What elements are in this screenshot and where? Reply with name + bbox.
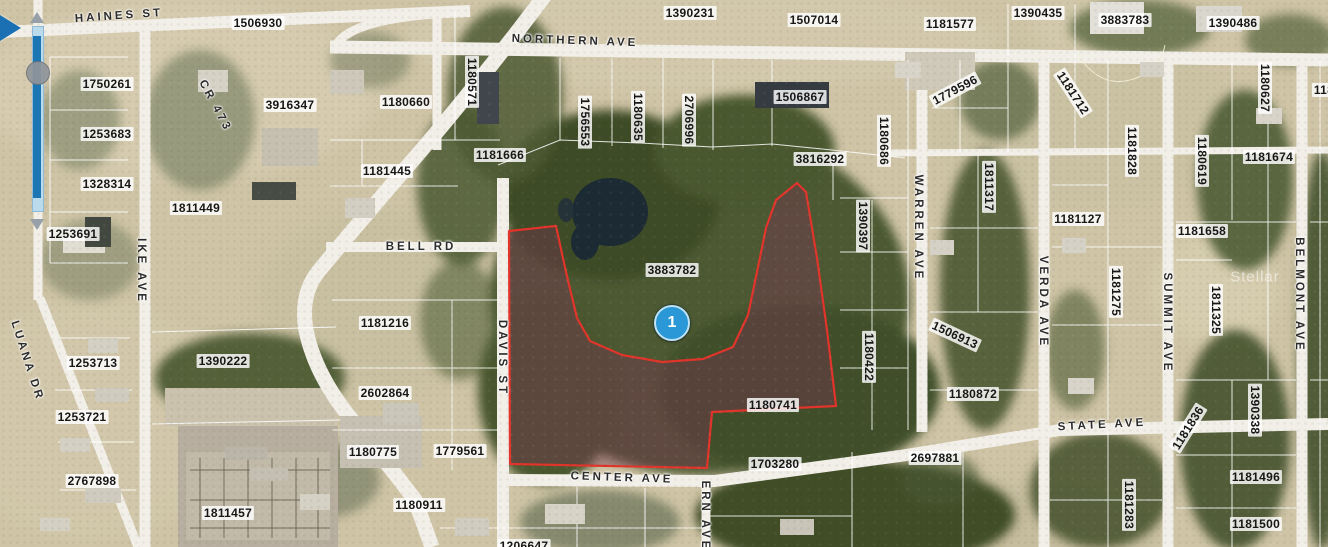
scroll-down-icon[interactable]: [30, 219, 44, 230]
scroll-up-icon[interactable]: [30, 12, 44, 23]
substation: [165, 388, 338, 547]
scrollbar-knob-icon[interactable]: [26, 61, 50, 85]
aerial-imagery: [0, 0, 1328, 547]
pan-arrow-icon[interactable]: [0, 15, 21, 41]
map-pin-marker[interactable]: 1: [654, 305, 690, 341]
map-scrollbar[interactable]: [29, 6, 45, 230]
watermark: Stellar: [1230, 269, 1280, 286]
map-canvas[interactable]: HAINES STNORTHERN AVECR 473IKE AVEBELL R…: [0, 0, 1328, 547]
